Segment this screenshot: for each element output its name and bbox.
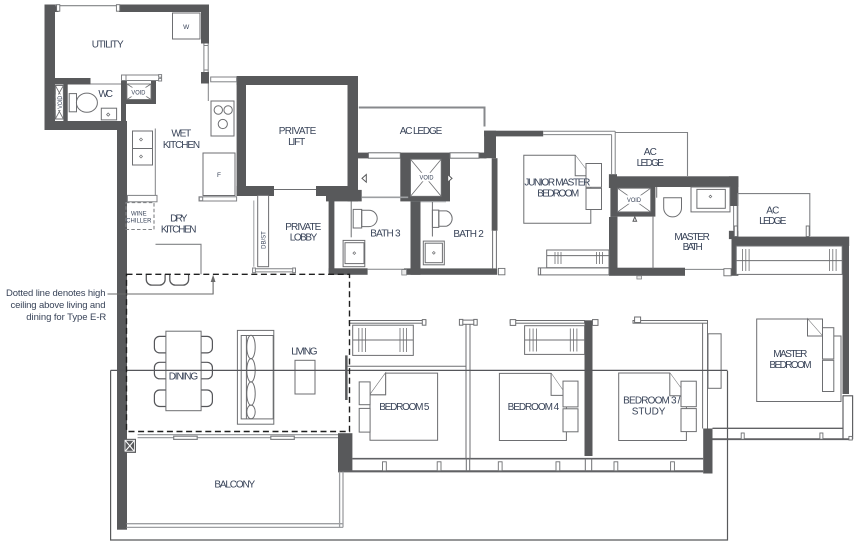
svg-text:AC: AC xyxy=(766,206,779,217)
svg-text:AC LEDGE: AC LEDGE xyxy=(400,126,443,137)
svg-text:F: F xyxy=(217,172,221,179)
svg-text:DINING: DINING xyxy=(169,372,199,383)
svg-text:LEDGE: LEDGE xyxy=(759,216,787,227)
svg-text:LIFT: LIFT xyxy=(288,137,305,148)
svg-text:CHILLER: CHILLER xyxy=(126,219,152,225)
svg-text:DRY: DRY xyxy=(170,214,188,225)
svg-text:KITCHEN: KITCHEN xyxy=(161,224,197,235)
svg-text:BATH 2: BATH 2 xyxy=(453,229,484,240)
svg-text:W: W xyxy=(183,24,190,31)
svg-text:PRIVATE: PRIVATE xyxy=(279,126,317,137)
svg-text:ceiling above living and: ceiling above living and xyxy=(11,300,106,311)
svg-text:dining for Type E-R: dining for Type E-R xyxy=(26,312,106,323)
svg-text:VOID: VOID xyxy=(58,95,64,109)
svg-text:LIVING: LIVING xyxy=(291,346,318,357)
svg-text:BATH 3: BATH 3 xyxy=(370,229,401,240)
svg-text:WC: WC xyxy=(98,89,113,100)
svg-text:LEDGE: LEDGE xyxy=(637,158,665,169)
svg-text:BEDROOM 5: BEDROOM 5 xyxy=(379,402,430,413)
svg-text:AC: AC xyxy=(644,147,657,158)
svg-text:UTILITY: UTILITY xyxy=(92,40,124,51)
svg-text:WINE: WINE xyxy=(131,211,147,217)
svg-text:JUNIOR MASTER: JUNIOR MASTER xyxy=(524,178,590,189)
svg-text:BEDROOM: BEDROOM xyxy=(769,360,811,371)
svg-text:BEDROOM 4: BEDROOM 4 xyxy=(508,402,560,413)
svg-text:LOBBY: LOBBY xyxy=(290,233,318,244)
svg-text:BALCONY: BALCONY xyxy=(214,479,255,490)
svg-text:PRIVATE: PRIVATE xyxy=(285,222,321,233)
svg-text:MASTER: MASTER xyxy=(773,349,807,360)
svg-text:BEDROOM: BEDROOM xyxy=(537,188,579,199)
svg-text:STUDY: STUDY xyxy=(632,407,666,418)
svg-text:VOID: VOID xyxy=(627,197,641,204)
svg-text:KITCHEN: KITCHEN xyxy=(163,140,200,151)
svg-text:WET: WET xyxy=(171,129,191,140)
svg-text:VOID: VOID xyxy=(131,89,145,96)
svg-text:BATH: BATH xyxy=(683,242,703,253)
svg-text:Dotted line denotes high: Dotted line denotes high xyxy=(6,288,106,299)
svg-text:BEDROOM 3 /: BEDROOM 3 / xyxy=(623,396,681,407)
svg-text:DB/ST: DB/ST xyxy=(261,231,267,249)
svg-text:VOID: VOID xyxy=(420,174,434,181)
